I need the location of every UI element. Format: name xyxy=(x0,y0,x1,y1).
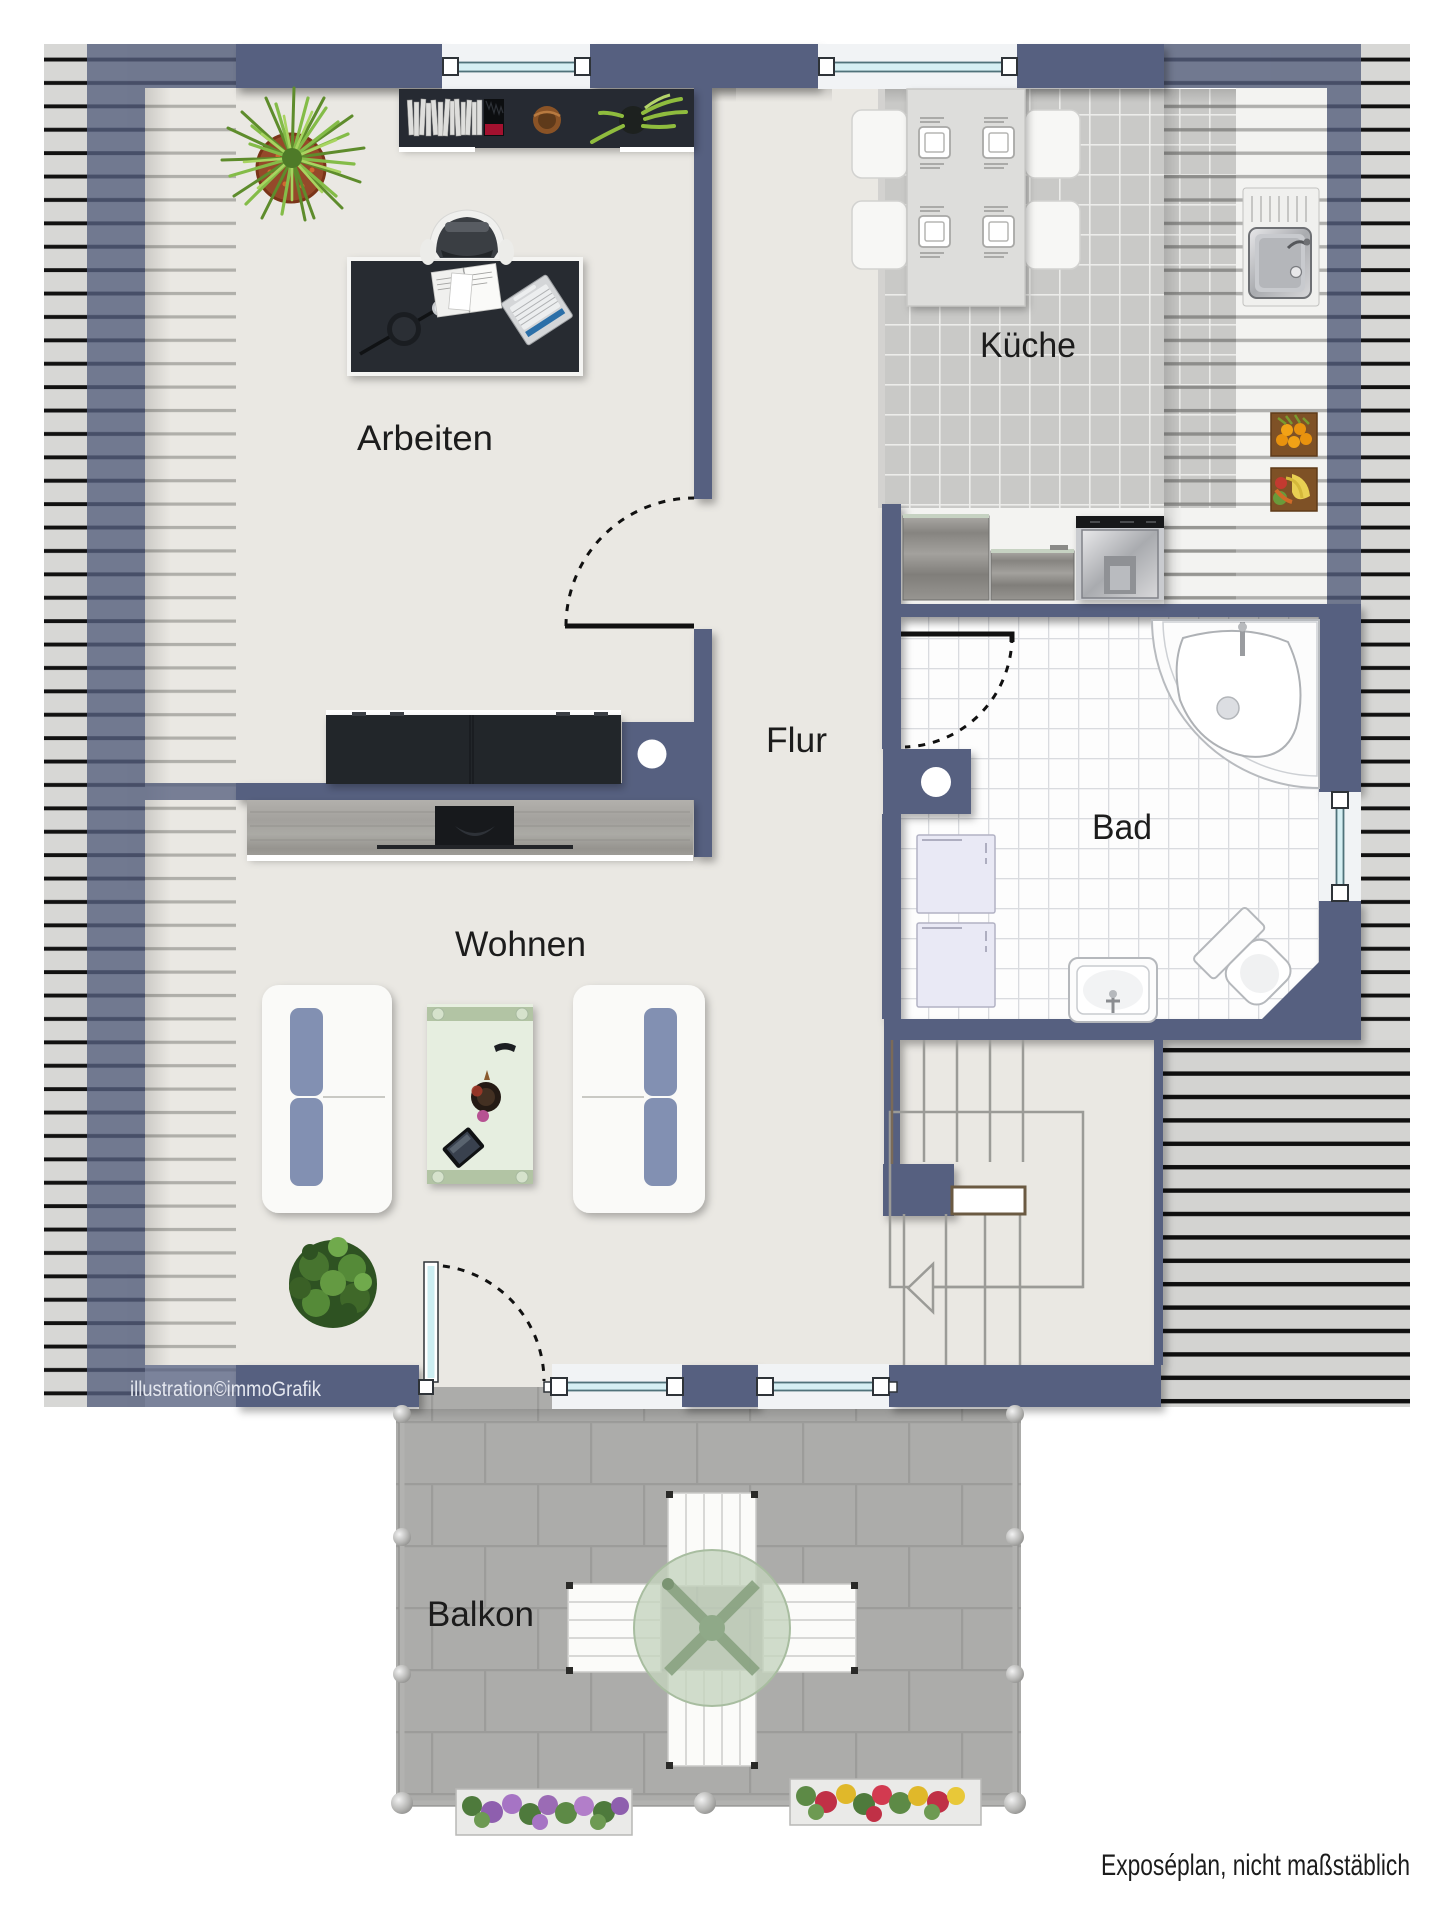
svg-text:Bad: Bad xyxy=(1092,808,1152,847)
svg-text:Balkon: Balkon xyxy=(427,1595,534,1634)
svg-text:Arbeiten: Arbeiten xyxy=(357,419,493,458)
svg-text:Wohnen: Wohnen xyxy=(455,925,586,964)
svg-text:Exposéplan, nicht maßstäblich: Exposéplan, nicht maßstäblich xyxy=(1101,1849,1410,1882)
svg-text:illustration©immoGrafik: illustration©immoGrafik xyxy=(130,1378,321,1401)
svg-text:Küche: Küche xyxy=(980,326,1076,365)
svg-text:Flur: Flur xyxy=(766,721,827,760)
